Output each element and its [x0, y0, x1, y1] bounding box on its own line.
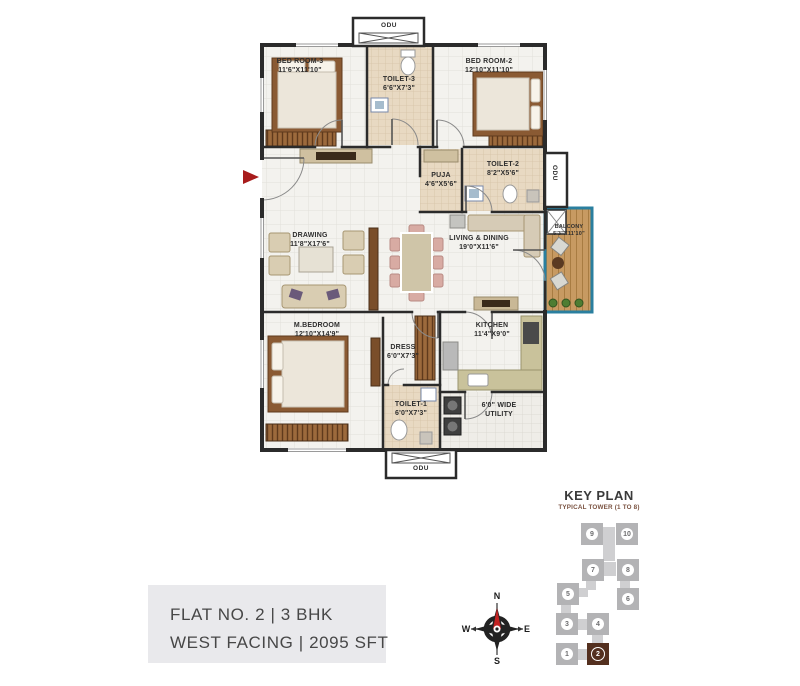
- partition-drawing: [369, 228, 378, 310]
- wardrobe-mbedroom: [266, 424, 348, 441]
- room-label-living-dining: LIVING & DINING19'0"X11'6": [449, 235, 509, 253]
- room-label-toilet1: TOILET-16'0"X7'3": [395, 401, 427, 419]
- compass-south-label: S: [494, 656, 500, 666]
- odu-label-top: ODU: [381, 22, 397, 29]
- keyplan-corridor: [603, 527, 615, 561]
- room-label-bedroom2: BED ROOM-212'10"X11'10": [465, 58, 513, 76]
- bed-mbedroom: [268, 336, 348, 412]
- keyplan-unit-1: 1: [556, 643, 578, 665]
- keyplan-unit-9: 9: [581, 523, 603, 545]
- flat-info-line2: WEST FACING | 2095 SFT: [170, 629, 389, 657]
- flat-info-line1: FLAT NO. 2 | 3 BHK: [170, 601, 389, 629]
- keyplan-subtitle: TYPICAL TOWER (1 TO 8): [558, 504, 639, 511]
- flat-info-panel: FLAT NO. 2 | 3 BHK WEST FACING | 2095 SF…: [148, 585, 386, 663]
- keyplan-unit-4: 4: [587, 613, 609, 635]
- keyplan-corridor: [604, 562, 616, 576]
- bed-bedroom2: [473, 72, 543, 136]
- keyplan-unit-8: 8: [617, 559, 639, 581]
- room-label-kitchen: KITCHEN11'4"X9'0": [474, 322, 510, 340]
- keyplan-unit-7: 7: [582, 559, 604, 581]
- keyplan-unit-5: 5: [557, 583, 579, 605]
- room-label-toilet2: TOILET-28'2"X5'6": [487, 161, 519, 179]
- room-label-dress: DRESS6'0"X7'3": [387, 344, 419, 362]
- floor-plan-graphics: [0, 0, 800, 686]
- room-label-toilet3: TOILET-36'6"X7'3": [383, 76, 415, 94]
- keyplan-unit-10: 10: [616, 523, 638, 545]
- keyplan-unit-6: 6: [617, 588, 639, 610]
- compass-north-label: N: [494, 591, 501, 601]
- keyplan-unit-2-highlighted: 2: [587, 643, 609, 665]
- room-label-balcony: BALCONY5'3"X11'10": [553, 224, 585, 238]
- odu-label-bottom: ODU: [413, 465, 429, 472]
- compass-east-label: E: [524, 624, 530, 634]
- entrance-arrow-icon: [243, 170, 259, 184]
- room-label-drawing: DRAWING11'8"X17'6": [290, 232, 330, 250]
- keyplan-unit-3: 3: [556, 613, 578, 635]
- room-label-utility: 6'0" WIDEUTILITY: [482, 402, 517, 420]
- floor-plan-page: BED ROOM-311'6"X11'10" TOILET-36'6"X7'3"…: [0, 0, 800, 686]
- compass-west-label: W: [462, 624, 471, 634]
- odu-label-right: ODU: [551, 165, 558, 181]
- room-label-mbedroom: M.BEDROOM12'10"X14'9": [294, 322, 340, 340]
- keyplan-title: KEY PLAN: [564, 488, 634, 503]
- compass-rose-icon: [471, 603, 523, 655]
- room-label-puja: PUJA4'6"X5'6": [425, 172, 457, 190]
- room-label-bedroom3: BED ROOM-311'6"X11'10": [277, 58, 324, 76]
